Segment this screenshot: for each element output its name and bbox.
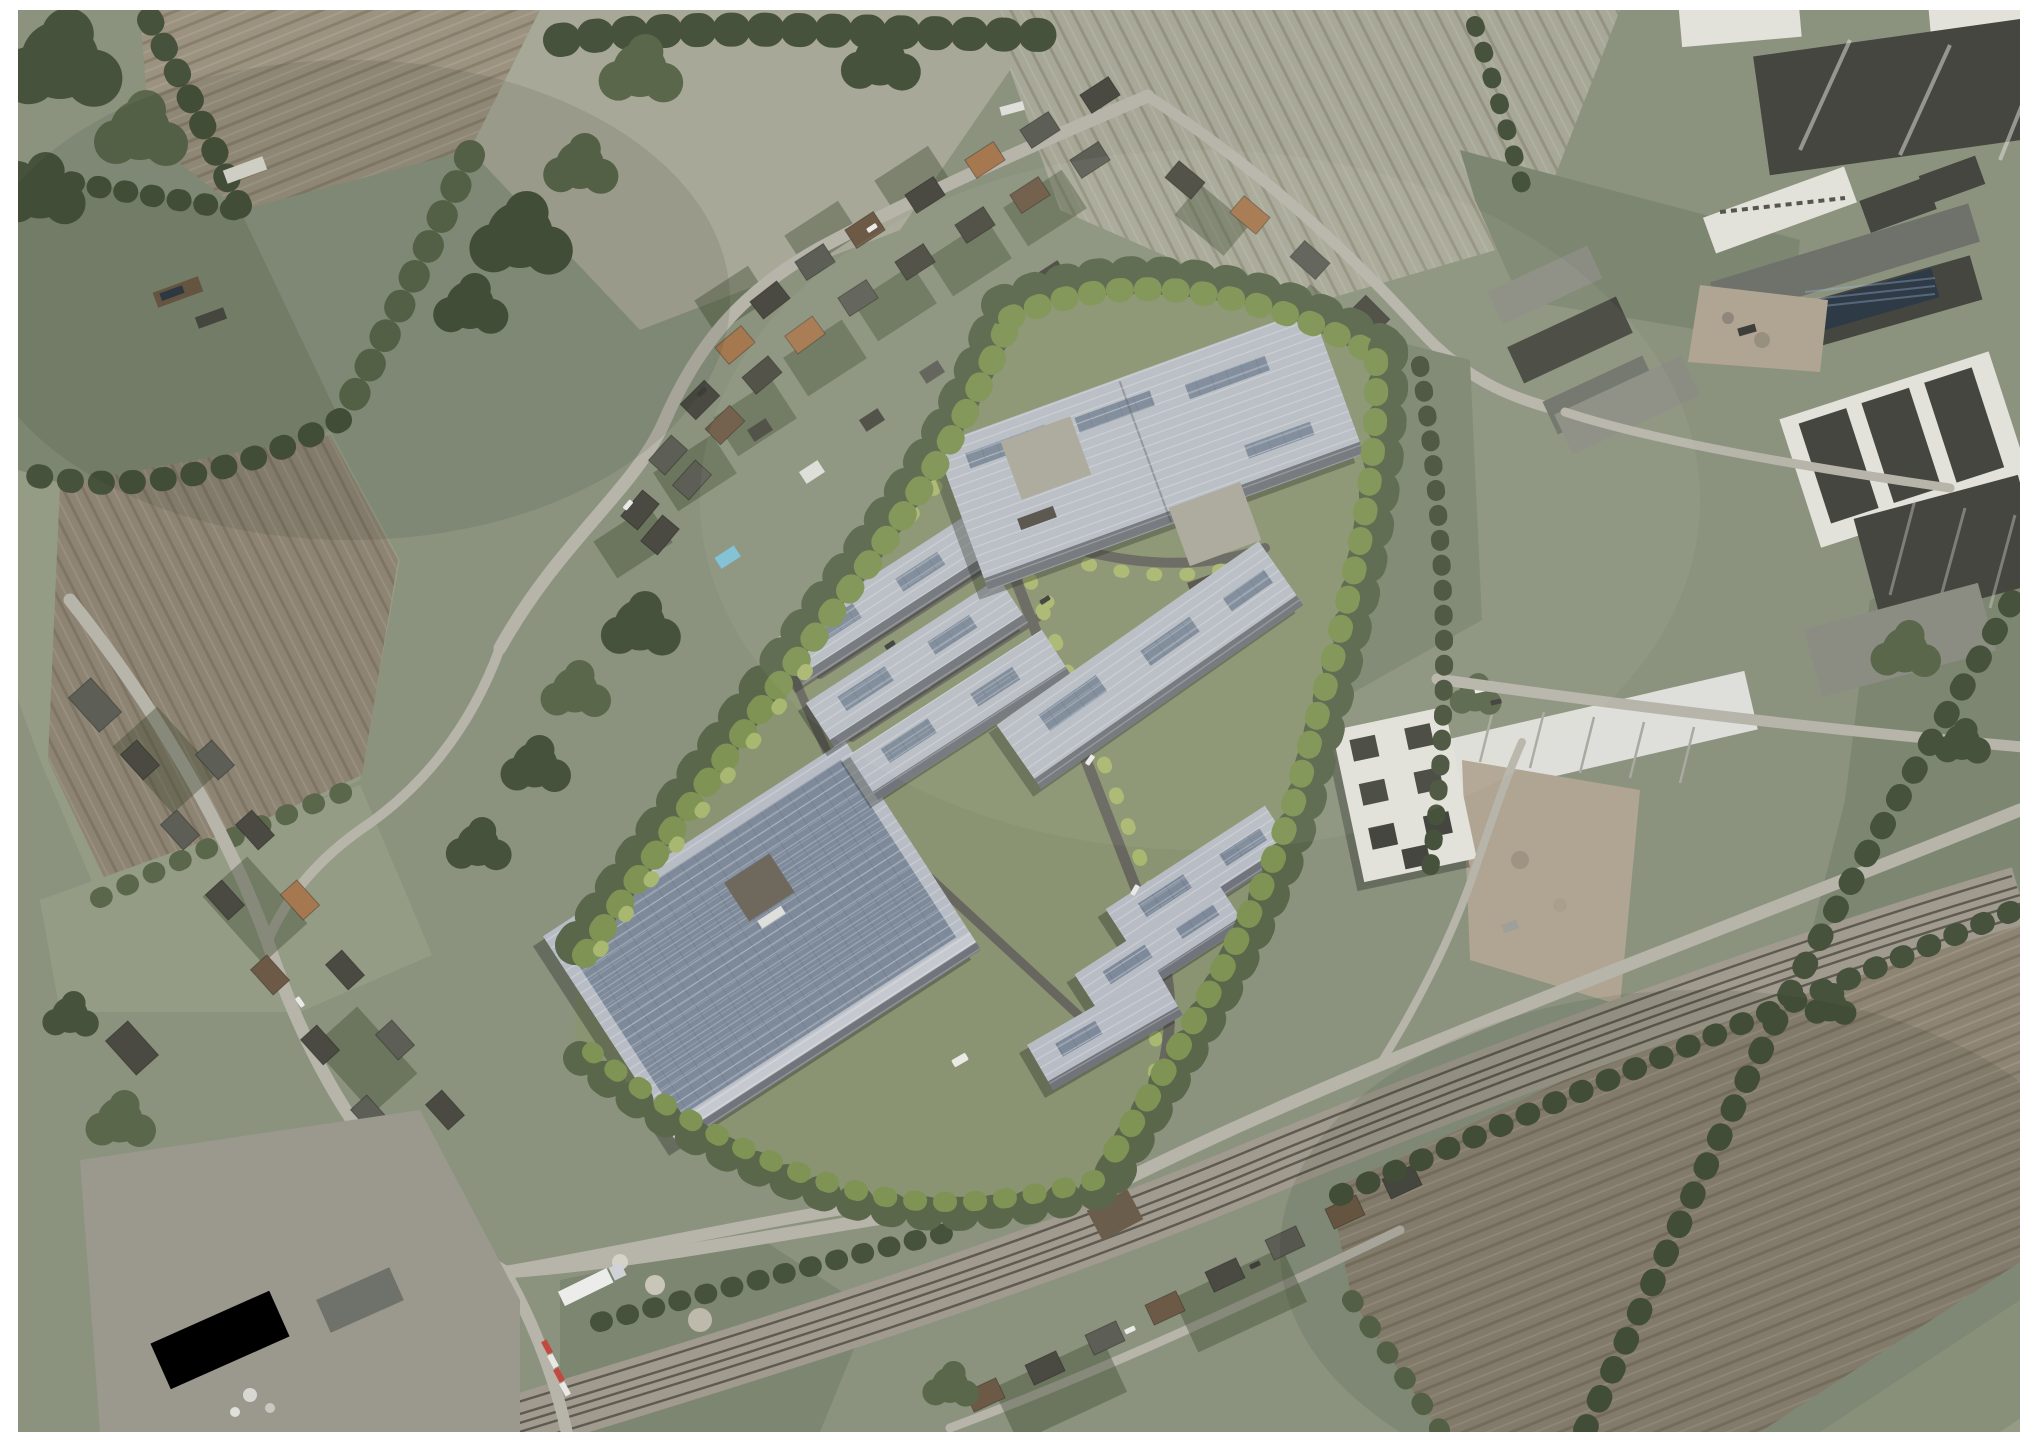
rubble [1754,332,1770,348]
aerial-photo [0,0,2035,1440]
scrap-pile [230,1407,240,1417]
gravel-pile [645,1275,665,1295]
shadow-tone [0,60,730,540]
scrap-pile [265,1403,275,1413]
rubble [1722,312,1734,324]
rubble-yard [1688,285,1828,372]
spoil-heap [1511,851,1529,869]
gravel-pile [688,1308,712,1332]
light-tone [700,150,1700,850]
scrap-pile [243,1388,257,1402]
spoil-heap [1553,898,1567,912]
